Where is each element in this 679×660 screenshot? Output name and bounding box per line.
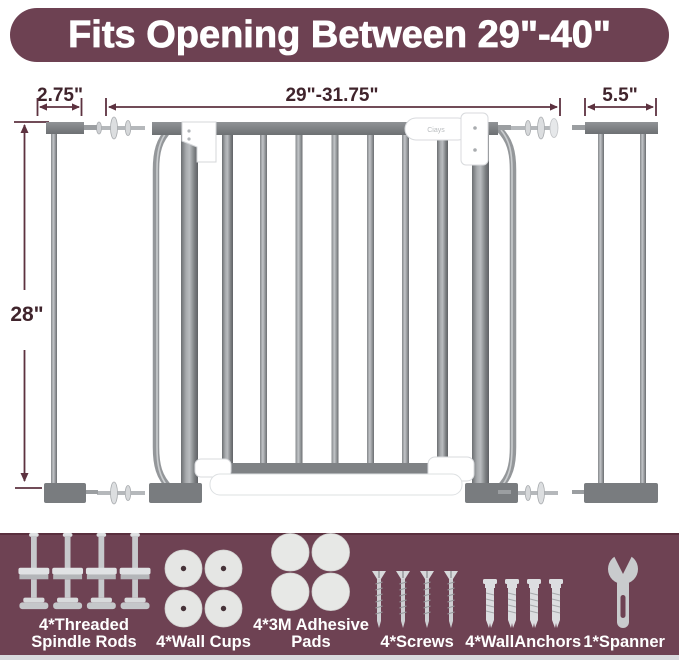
left-tension-bar [156,129,170,488]
gate-door-bars [222,122,448,475]
dimension-label-height: 28" [10,303,43,326]
accessory-label: 4*Screws [380,634,453,651]
spanner-icon [601,553,647,629]
accessory-spindle-rods: 4*Threaded Spindle Rods [14,533,154,655]
banner-title: Fits Opening Between 29"-40" [68,14,611,57]
threaded-spindle-rod-icon [14,533,154,612]
gate-foot [149,483,202,503]
accessory-label: 4*3M Adhesive Pads [253,617,369,651]
baby-gate-frame: Ciays [149,113,518,503]
gate-bottom-rail [222,463,448,475]
dimension-label-left-extension: 2.75" [37,85,83,106]
right-extension-panel [572,122,658,503]
accessory-wall-anchors: 4*WallAnchors [465,533,581,655]
accessory-label: 4*Wall Cups [156,634,251,651]
accessory-wall-cups: 4*Wall Cups [156,533,251,655]
accessory-label: 4*Threaded Spindle Rods [31,617,136,651]
right-tension-bar [499,129,513,488]
accessory-adhesive-pads: 4*3M Adhesive Pads [253,533,369,655]
left-extension-panel [44,122,98,503]
accessory-spanner: 1*Spanner [583,533,665,655]
brand-label: Ciays [427,127,445,134]
accessory-label: 1*Spanner [583,634,665,651]
gate-diagram: 2.75" 29"-31.75" 5.5" 28" [0,62,679,533]
accessory-label: 4*WallAnchors [465,634,581,651]
accessory-screws: 4*Screws [371,533,463,655]
dimension-label-gate-width: 29"-31.75" [285,85,378,106]
header-banner: Fits Opening Between 29"-40" [10,8,669,62]
dimension-label-right-extension: 5.5" [602,85,637,106]
product-diagram-page: Fits Opening Between 29"-40" 2.75" 29"-3… [0,0,679,660]
screw-icon [371,571,463,629]
adhesive-pad-icon [270,533,352,612]
wall-cup-icon [164,549,244,629]
included-accessories-strip: 4*Threaded Spindle Rods 4*Wall Cups [0,533,679,660]
wall-anchor-icon [481,579,565,629]
